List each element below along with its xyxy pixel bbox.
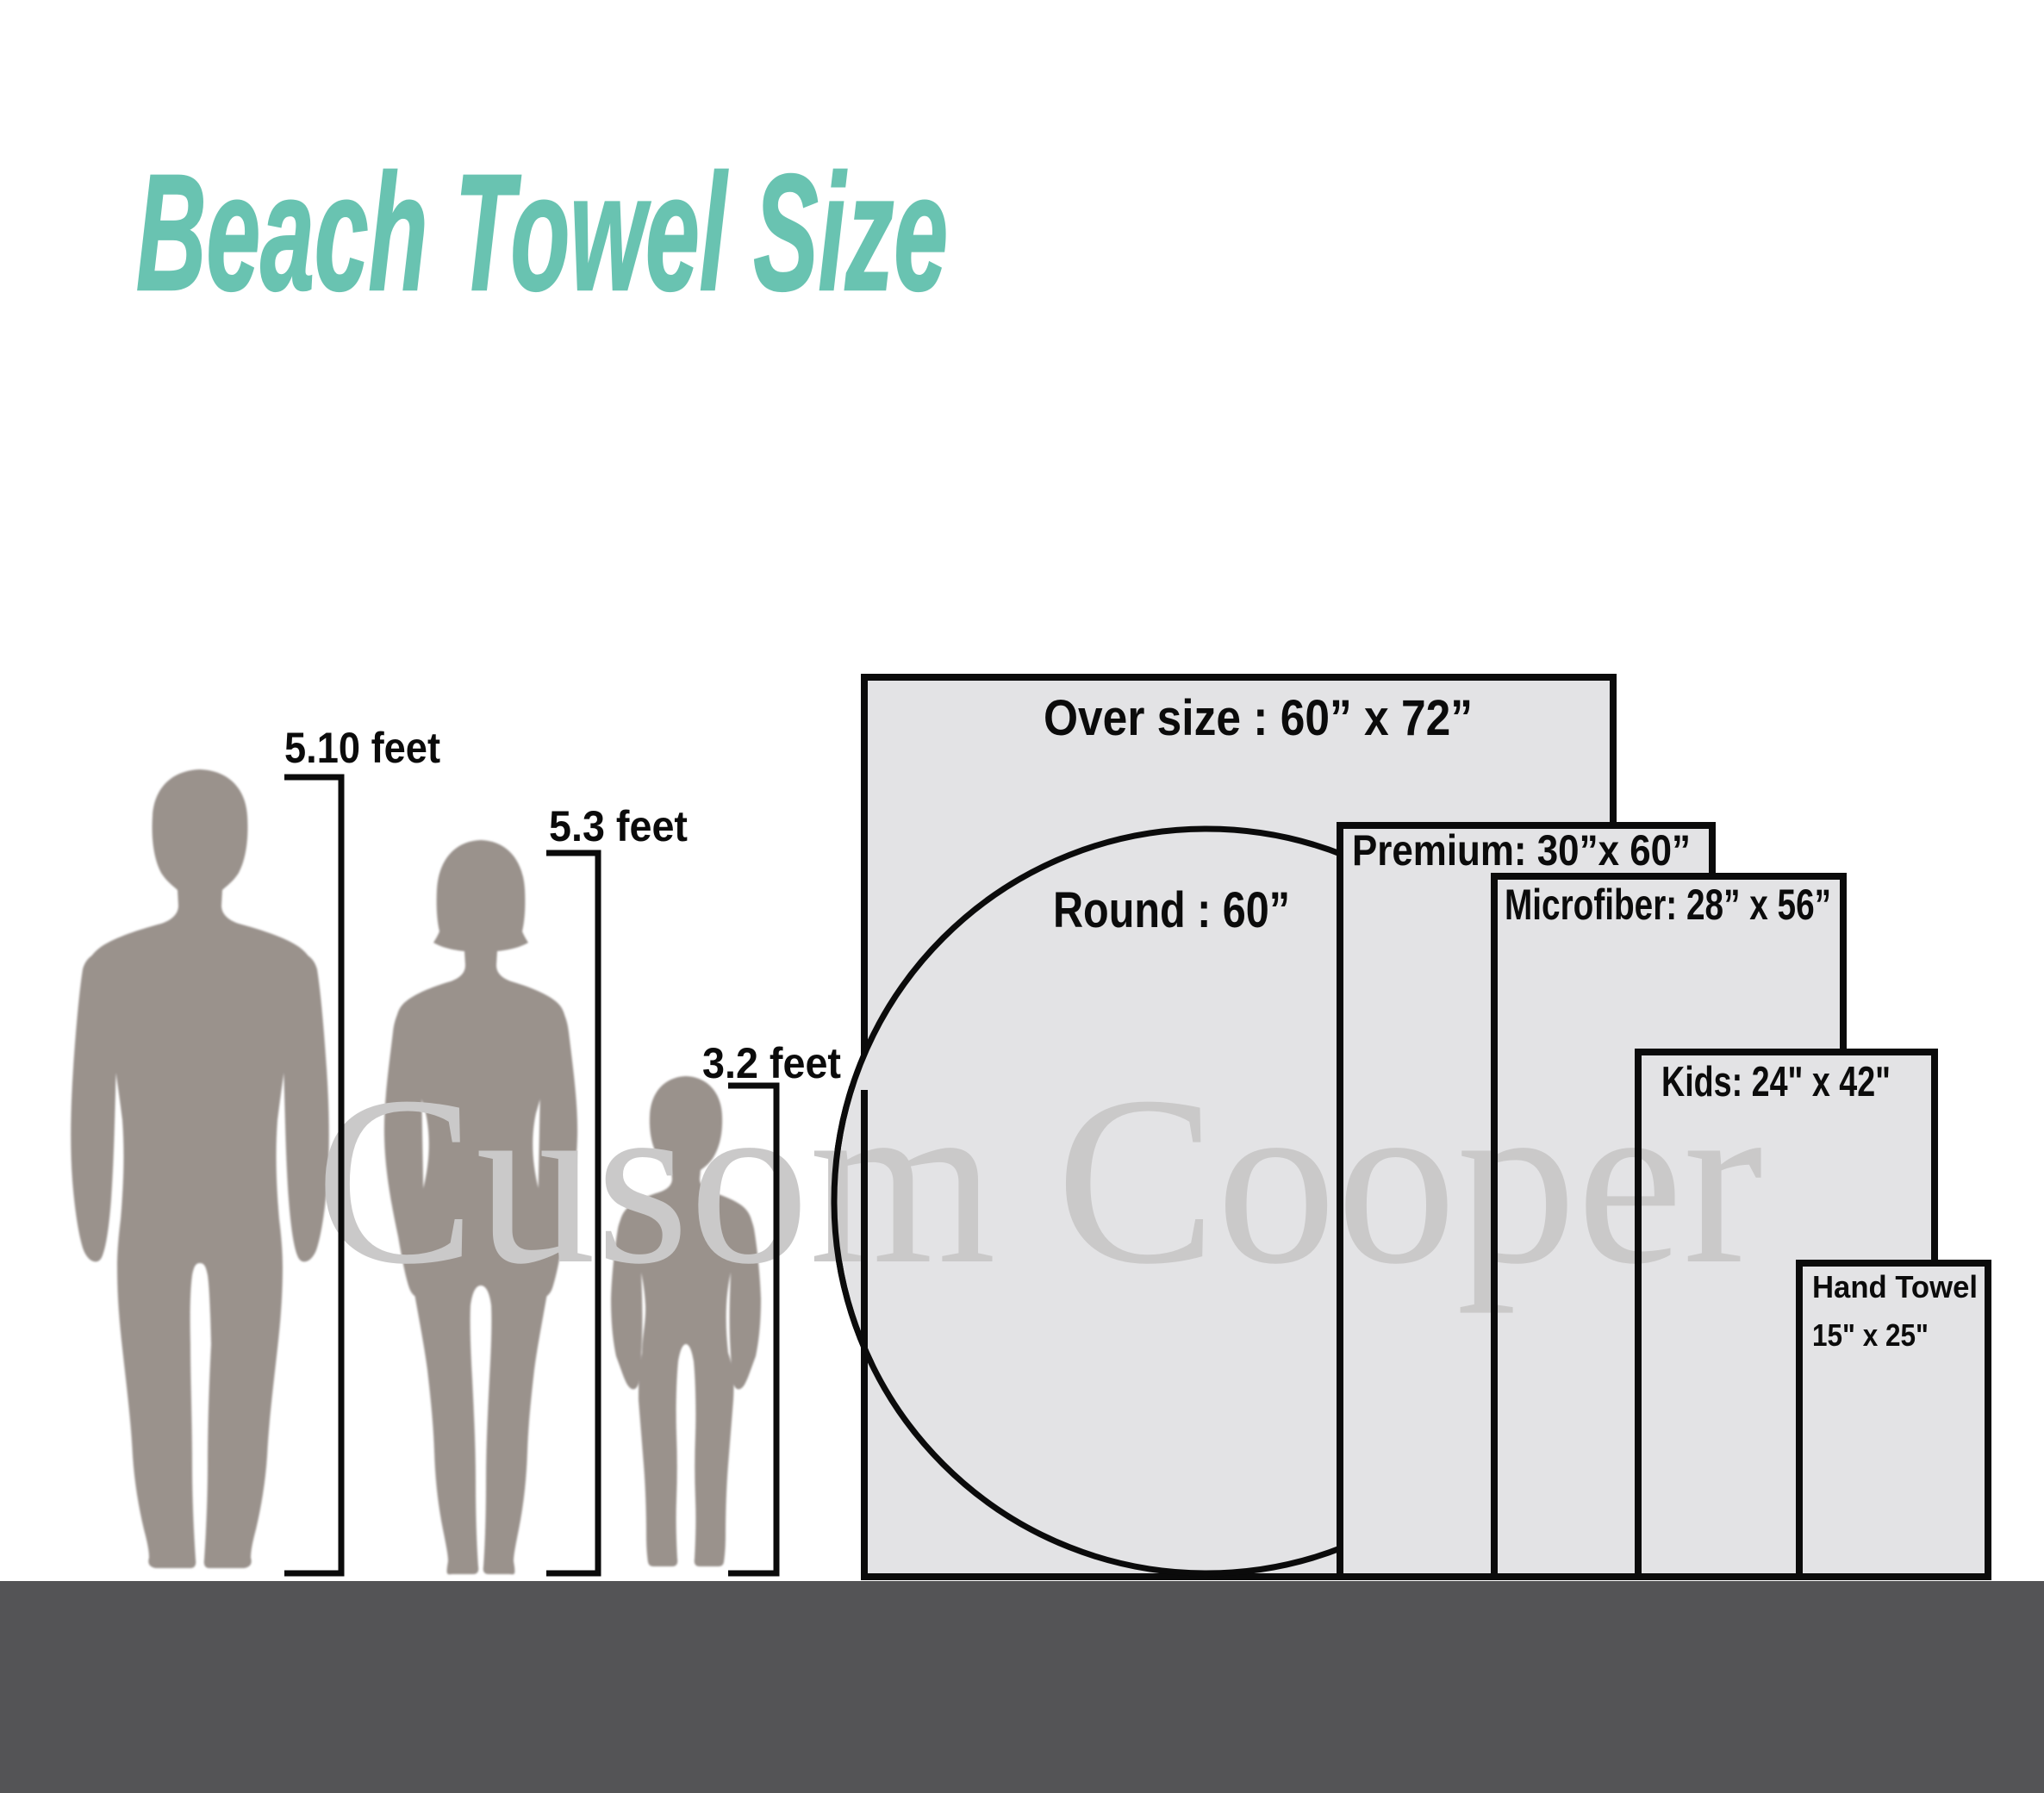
svg-text:5.3 feet: 5.3 feet (549, 802, 688, 850)
svg-text:Cusom Cooper: Cusom Cooper (315, 1046, 1763, 1314)
svg-text:Beach Towel Size: Beach Towel Size (136, 140, 948, 325)
svg-text:Premium: 30”x 60”: Premium: 30”x 60” (1352, 826, 1691, 875)
svg-text:Round : 60”: Round : 60” (1053, 882, 1290, 938)
svg-text:Microfiber: 28” x 56”: Microfiber: 28” x 56” (1505, 881, 1831, 929)
svg-text:5.10 feet: 5.10 feet (284, 724, 440, 772)
svg-text:Hand Towel: Hand Towel (1812, 1269, 1978, 1304)
svg-text:Over size : 60” x 72”: Over size : 60” x 72” (1044, 690, 1473, 746)
svg-text:15" x 25": 15" x 25" (1812, 1317, 1929, 1353)
